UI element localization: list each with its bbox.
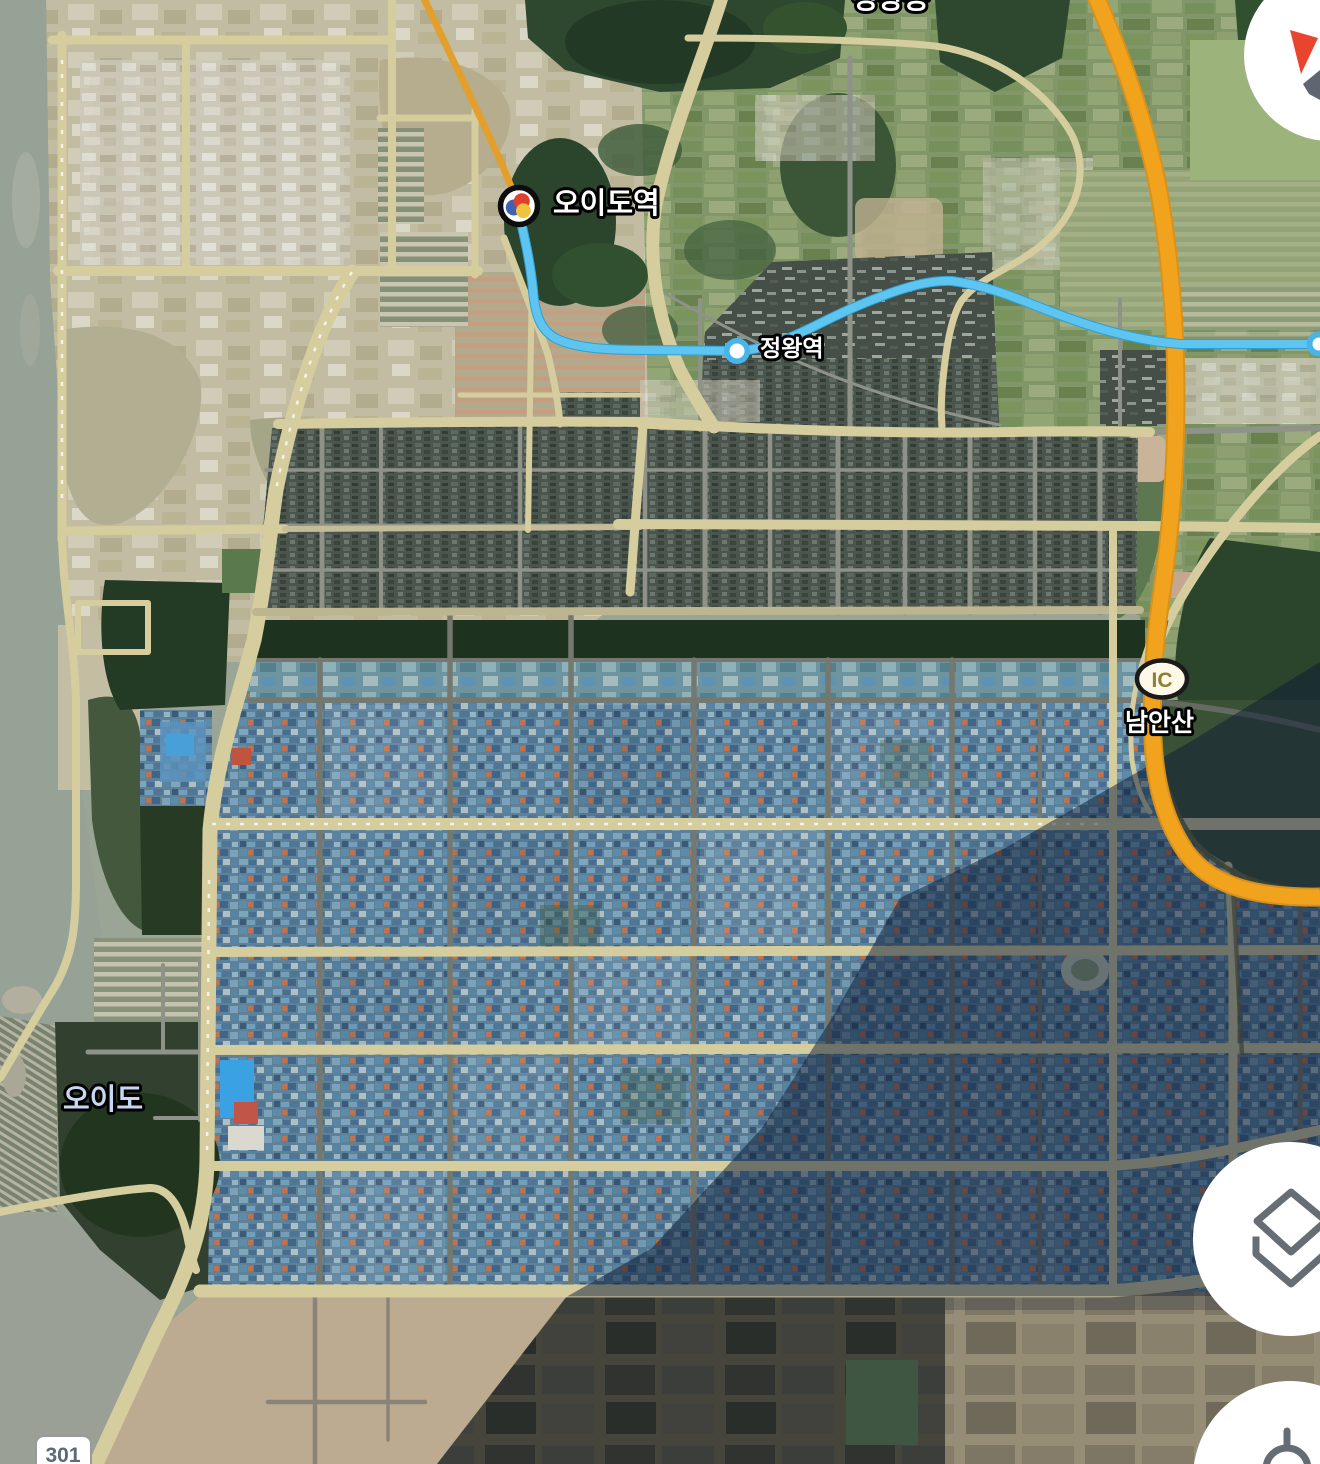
- svg-text:정왕동: 정왕동: [852, 0, 929, 14]
- svg-text:오이도역: 오이도역: [553, 187, 660, 220]
- svg-text:오이도: 오이도: [63, 1083, 143, 1116]
- svg-text:IC: IC: [1152, 669, 1173, 692]
- svg-text:301: 301: [45, 1444, 80, 1464]
- svg-text:정왕역: 정왕역: [760, 335, 823, 361]
- svg-text:남안산: 남안산: [1125, 709, 1194, 737]
